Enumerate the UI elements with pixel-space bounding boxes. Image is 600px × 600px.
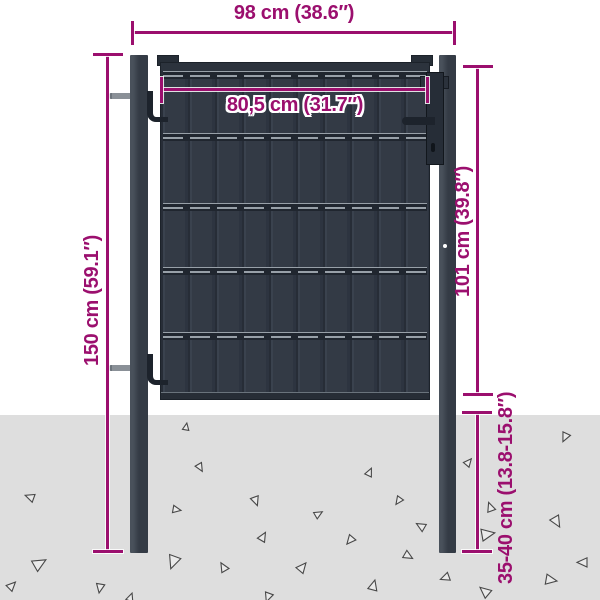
ground-depth-label: 35-40 cm (13.8-15.8″): [493, 375, 520, 600]
dimension-tick: [462, 411, 492, 414]
gate-width-label: 80,5 cm (31.7″): [162, 94, 428, 117]
post-screw-dot: [443, 244, 447, 248]
gate-height-label: 101 cm (39.8″): [450, 111, 477, 351]
overall-width-label: 98 cm (38.6″): [134, 2, 454, 25]
dimension-tick: [462, 550, 492, 553]
product-dimension-diagram: 98 cm (38.6″) 80,5 cm (31.7″) 150 cm (59…: [0, 0, 600, 600]
gate-top-frame: [161, 63, 429, 71]
dimension-line: [133, 31, 455, 34]
dimension-tick: [93, 550, 123, 553]
bottom-hinge: [147, 354, 168, 385]
dimension-line: [476, 413, 479, 553]
dimension-tick: [463, 393, 493, 396]
dimension-tick: [93, 53, 123, 56]
gate-bottom-frame: [161, 392, 429, 399]
dimension-line: [162, 88, 428, 91]
gate-rail: [163, 332, 427, 340]
dimension-tick: [463, 65, 493, 68]
dimension-line: [106, 55, 109, 553]
post-height-label: 150 cm (59.1″): [79, 170, 106, 430]
latch-handle: [402, 117, 435, 125]
left-post: [130, 55, 148, 553]
gate-rail: [163, 133, 427, 141]
gate-rail: [163, 203, 427, 211]
latch-keyhole: [431, 143, 435, 152]
gate-rail: [163, 267, 427, 275]
gate-rail: [163, 71, 427, 79]
